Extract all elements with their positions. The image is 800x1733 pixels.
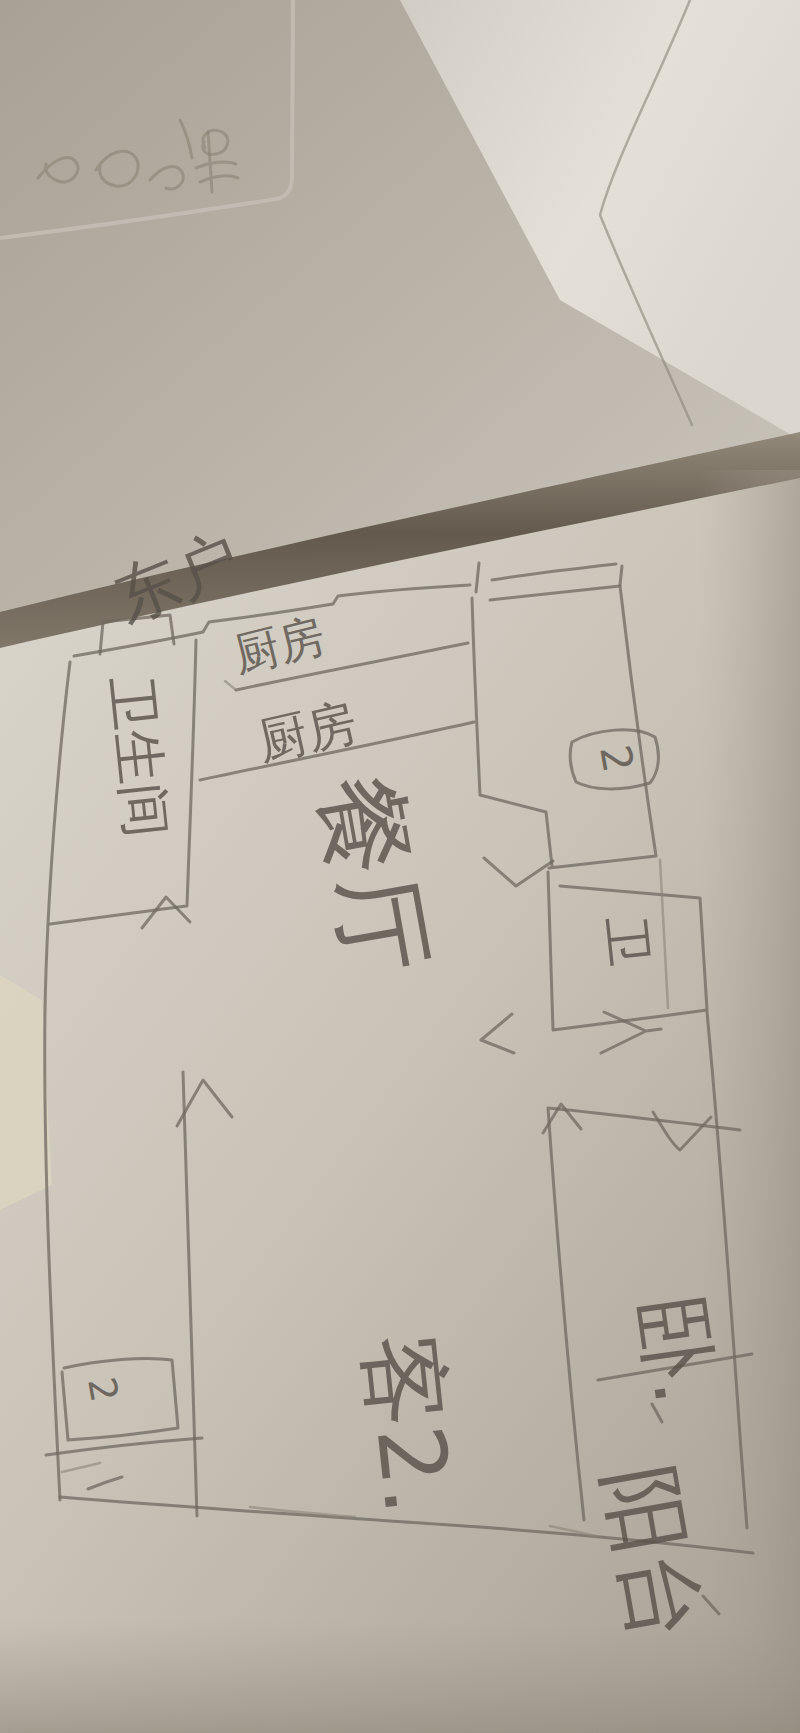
label-toilet: 卫 bbox=[596, 913, 659, 969]
photo-of-floorplan-sketch: 东户 厨房 厨房 餐厅 卫生间 2 卫 卧. 客2. 2 阳台 bbox=[0, 0, 800, 1733]
label-bedroom-right: 卧. bbox=[623, 1289, 732, 1409]
floorplan-sketch-svg: 东户 厨房 厨房 餐厅 卫生间 2 卫 卧. 客2. 2 阳台 bbox=[0, 0, 800, 1733]
label-living: 客2. bbox=[346, 1329, 471, 1519]
